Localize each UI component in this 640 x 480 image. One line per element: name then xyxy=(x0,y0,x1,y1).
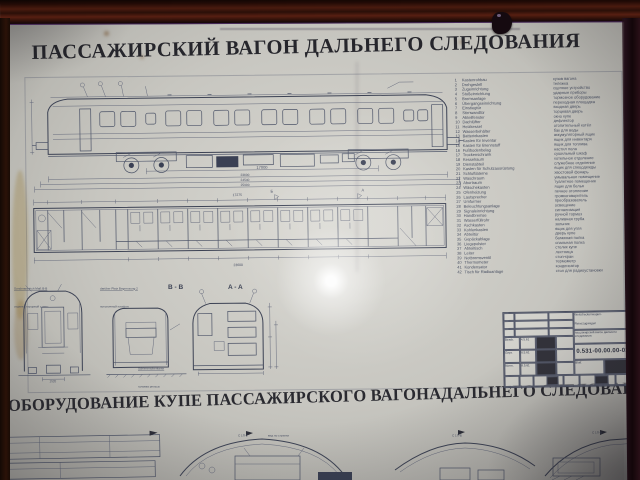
legend-n: 42 xyxy=(457,270,464,275)
plan-right-service xyxy=(398,206,443,247)
title-block-divider xyxy=(562,375,564,386)
plan-dimensions: 17275 23600 Б А xyxy=(34,186,447,269)
drawing-name-ru-cell: пассажирский вагон дальнего следования xyxy=(574,329,631,344)
title-block-cell xyxy=(556,336,574,349)
bearb-cell: Bearb. xyxy=(504,337,520,350)
drawing-number-cell: 0.531-00.00.00-01 xyxy=(574,343,631,360)
signature-cell xyxy=(536,336,556,349)
signature-cell xyxy=(536,349,556,362)
wagon-body xyxy=(47,78,447,157)
title-block-divider xyxy=(578,375,580,386)
section-aa-label: A - A xyxy=(228,284,243,291)
legend-ru: стол для радиоустановки xyxy=(556,268,634,274)
bottom-section-2-label: С 1П-2 вид по стрелке xyxy=(238,428,323,446)
blatt-cell: Blatt xyxy=(574,359,604,375)
framed-poster-photo: ПАССАЖИРСКИЙ ВАГОН ДАЛЬНЕГО СЛЕДОВАНИЯ О… xyxy=(0,0,640,480)
svg-text:А: А xyxy=(361,187,364,192)
title-block-divider xyxy=(513,313,515,337)
rail-top-label: Schienenoberkante головка рельса xyxy=(138,361,207,397)
norm-cell: Norm. xyxy=(504,363,520,376)
bottom-section-3 xyxy=(318,430,535,480)
wooden-frame-top xyxy=(0,0,640,25)
title-block-stamp xyxy=(594,375,608,384)
drawing-title-block: Bearb. 4.5.61 Gepr. 6.5.61 Norm. 8.5.61 … xyxy=(502,310,632,388)
title-block-stamp xyxy=(546,376,558,385)
title-block-divider xyxy=(614,374,616,385)
svg-text:17275: 17275 xyxy=(233,193,243,197)
date-cell: 4.5.61 xyxy=(520,337,536,350)
title-block-divider xyxy=(532,376,534,387)
wooden-frame-left xyxy=(0,18,10,480)
end-view-note: Sonderanstrich Maß B-B отделка торцовой … xyxy=(14,281,104,317)
title-block-cell xyxy=(556,349,574,362)
glass-edge-shadow xyxy=(220,28,520,30)
svg-text:24540: 24540 xyxy=(241,178,250,182)
gepr-cell: Gepr. xyxy=(504,350,520,363)
svg-text:Б: Б xyxy=(270,189,273,194)
date-cell: 6.5.61 xyxy=(520,350,536,363)
underframe-equipment xyxy=(186,154,354,168)
svg-text:23600: 23600 xyxy=(233,263,243,267)
title-block-divider xyxy=(518,376,520,387)
bottom-section-3-label: С 1П-Б xyxy=(452,428,478,446)
title-block-divider xyxy=(547,312,549,336)
plan-left-service xyxy=(37,210,116,251)
svg-text:1520: 1520 xyxy=(49,379,56,383)
svg-text:17000: 17000 xyxy=(256,165,268,170)
title-block-bottom-row xyxy=(504,374,631,387)
drawing-name-de-cell: Weitstreckenwagen- Reisezugwagen xyxy=(573,311,630,330)
legend-de: Tisch für Radioanlage xyxy=(464,269,555,275)
date-cell: 8.5.61 xyxy=(520,363,536,376)
bottom-section-4-label: С 1П-В xyxy=(592,425,618,443)
bottom-section-1 xyxy=(5,431,161,480)
wagon-side-elevation-drawing: 17000 23600 24540 25900 xyxy=(27,77,460,194)
parts-legend-list: 1Kastenrohbauкузов вагона2Drehgestellтел… xyxy=(455,76,634,275)
title-block-cell xyxy=(556,362,574,375)
wagon-floor-plan-drawing: 17275 23600 Б А xyxy=(27,183,453,276)
frame-clip-glint xyxy=(497,14,501,17)
side-windows xyxy=(100,108,428,127)
signature-cell xyxy=(536,362,556,375)
plan-compartments xyxy=(128,206,368,249)
buffers xyxy=(32,137,463,149)
svg-text:23600: 23600 xyxy=(240,173,249,177)
mid-section-note: darüber Platz Begrenzung 2 потолочный пл… xyxy=(100,281,200,317)
parts-legend: 1Kastenrohbauкузов вагона2Drehgestellтел… xyxy=(455,76,634,278)
dimension-lines: 17000 23600 24540 25900 xyxy=(30,94,461,192)
